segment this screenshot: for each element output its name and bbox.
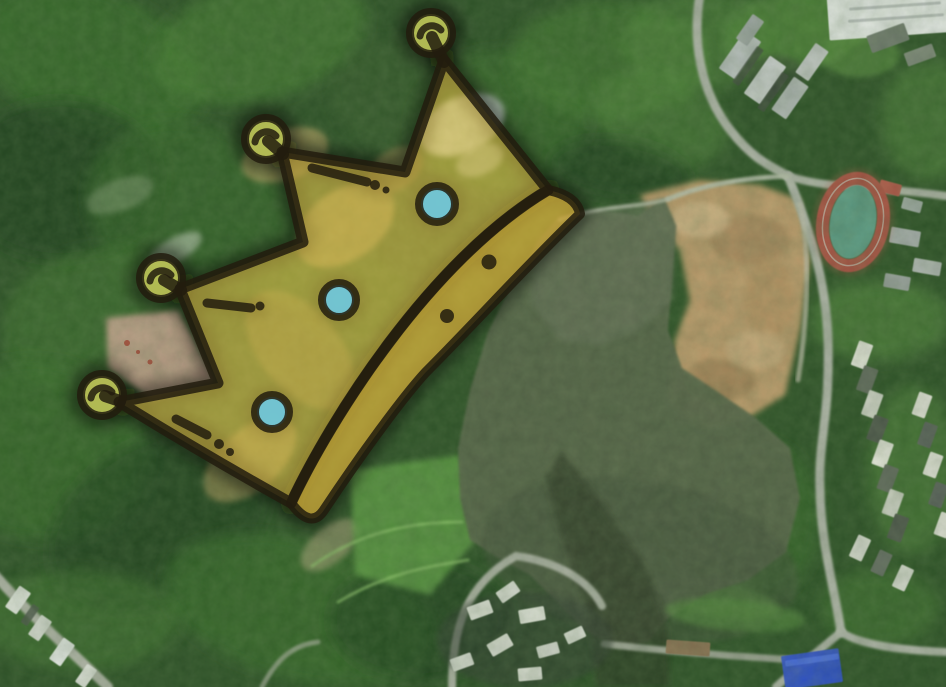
crown-dot-mark <box>440 309 454 323</box>
crown-dot-mark <box>226 448 234 456</box>
map-screenshot <box>0 0 946 687</box>
crown-dot-mark <box>383 187 390 194</box>
crown-dot-mark <box>214 439 224 449</box>
crown-dot-mark <box>482 255 497 270</box>
crown-dot-mark <box>370 180 380 190</box>
crown-stem <box>105 396 120 401</box>
crown-dot-mark <box>256 302 265 311</box>
crown-dash-mark <box>207 303 251 308</box>
satellite-map-view[interactable] <box>0 0 946 687</box>
